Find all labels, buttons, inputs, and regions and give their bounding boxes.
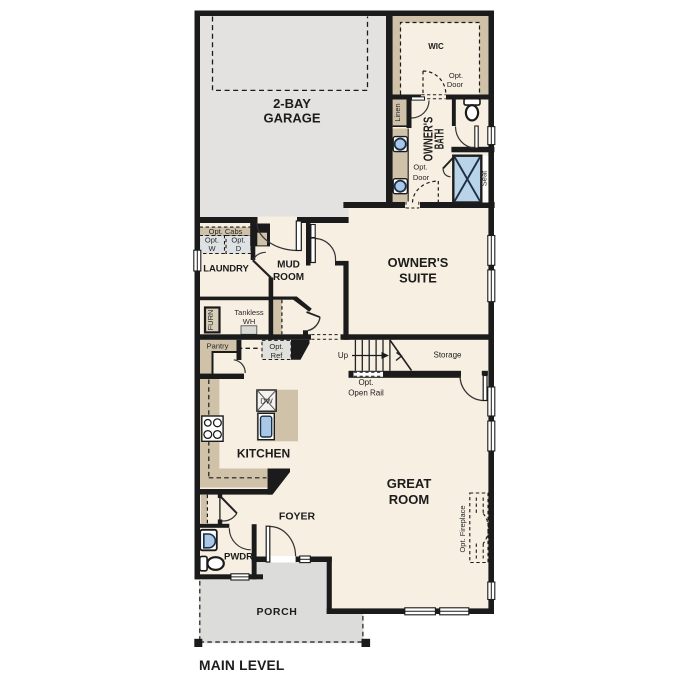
svg-text:KITCHEN: KITCHEN <box>237 447 290 461</box>
svg-text:GREAT: GREAT <box>387 476 432 491</box>
svg-text:Seat: Seat <box>479 170 488 186</box>
svg-text:PORCH: PORCH <box>257 606 298 618</box>
svg-text:Pantry: Pantry <box>207 342 229 351</box>
svg-text:GARAGE: GARAGE <box>263 111 320 126</box>
svg-text:Open Rail: Open Rail <box>348 389 384 398</box>
svg-text:W: W <box>208 244 216 253</box>
svg-text:Opt.: Opt. <box>413 163 427 172</box>
svg-text:WH: WH <box>243 317 256 326</box>
svg-text:Door: Door <box>413 173 430 182</box>
svg-text:SUITE: SUITE <box>399 271 437 286</box>
svg-text:Up: Up <box>338 351 349 360</box>
svg-text:FURN: FURN <box>206 310 215 331</box>
svg-text:Opt. Cabs: Opt. Cabs <box>209 227 243 236</box>
svg-text:2-BAY: 2-BAY <box>273 96 311 111</box>
svg-text:MUD: MUD <box>277 260 300 271</box>
svg-text:D: D <box>236 244 242 253</box>
svg-text:Opt. Fireplace: Opt. Fireplace <box>458 505 467 552</box>
svg-text:Door: Door <box>447 80 464 89</box>
svg-text:LAUNDRY: LAUNDRY <box>203 264 249 275</box>
svg-text:OWNER'S: OWNER'S <box>388 255 449 270</box>
svg-text:Tankless: Tankless <box>234 308 263 317</box>
svg-text:WIC: WIC <box>428 42 444 51</box>
svg-text:ROOM: ROOM <box>273 272 304 283</box>
svg-text:ROOM: ROOM <box>389 492 429 507</box>
svg-text:Storage: Storage <box>433 351 462 360</box>
svg-text:Opt.: Opt. <box>449 71 463 80</box>
svg-text:Ref: Ref <box>271 351 284 360</box>
svg-text:DW: DW <box>260 397 273 406</box>
svg-text:PWDR: PWDR <box>224 552 253 563</box>
svg-text:MAIN LEVEL: MAIN LEVEL <box>199 658 285 673</box>
svg-text:Opt.: Opt. <box>358 378 373 387</box>
svg-text:FOYER: FOYER <box>279 511 316 523</box>
svg-text:Linen: Linen <box>393 103 402 121</box>
